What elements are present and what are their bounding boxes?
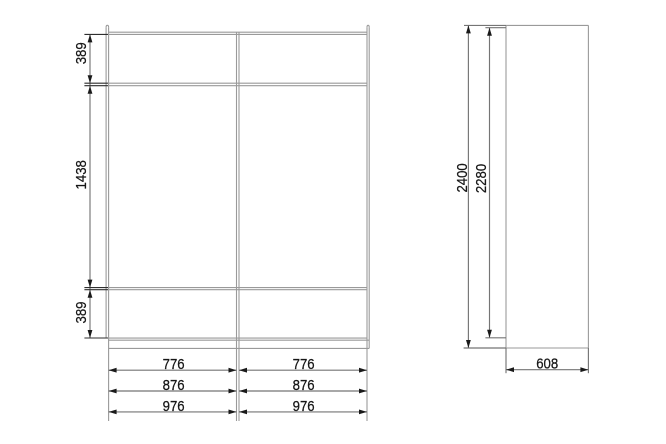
svg-text:1438: 1438 [72, 160, 89, 189]
svg-text:608: 608 [536, 354, 558, 371]
svg-text:389: 389 [72, 42, 89, 64]
svg-text:976: 976 [163, 397, 185, 414]
svg-text:2400: 2400 [453, 163, 470, 192]
svg-text:776: 776 [293, 355, 315, 372]
svg-text:2280: 2280 [472, 164, 489, 193]
svg-text:389: 389 [72, 301, 89, 323]
svg-text:776: 776 [163, 355, 185, 372]
svg-text:976: 976 [293, 397, 315, 414]
svg-text:876: 876 [163, 376, 185, 393]
svg-text:876: 876 [293, 376, 315, 393]
